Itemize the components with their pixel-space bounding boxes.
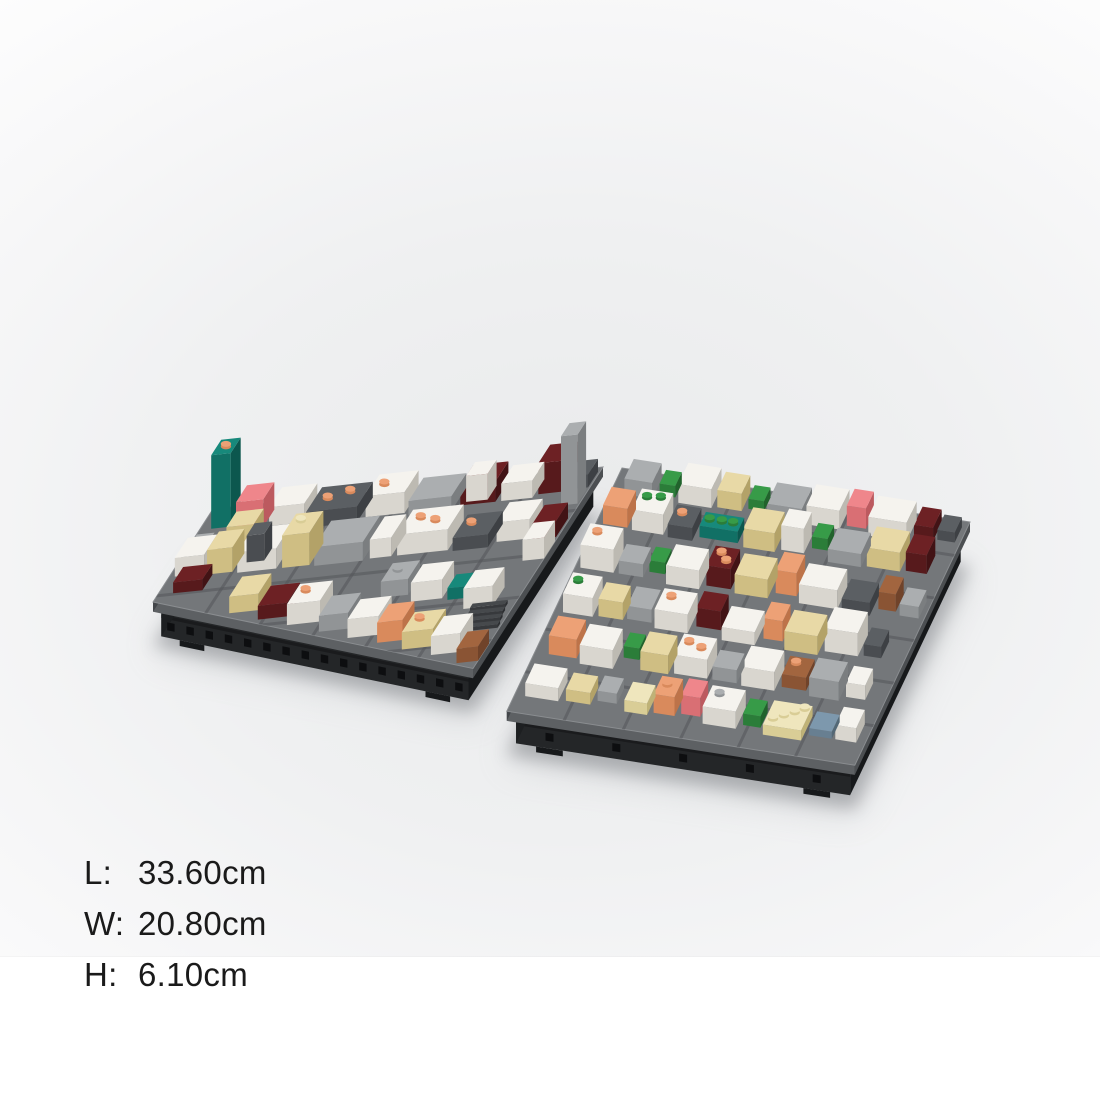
height-label: H: bbox=[84, 956, 138, 994]
width-label: W: bbox=[84, 905, 138, 943]
length-value: 33.60cm bbox=[138, 854, 267, 892]
length-label: L: bbox=[84, 854, 138, 892]
dimension-row-height: H: 6.10cm bbox=[84, 956, 267, 1007]
width-value: 20.80cm bbox=[138, 905, 267, 943]
dimension-row-width: W: 20.80cm bbox=[84, 905, 267, 956]
height-value: 6.10cm bbox=[138, 956, 248, 994]
product-image: L: 33.60cm W: 20.80cm H: 6.10cm bbox=[0, 0, 1100, 1100]
dimensions: L: 33.60cm W: 20.80cm H: 6.10cm bbox=[84, 854, 267, 1007]
dimension-row-length: L: 33.60cm bbox=[84, 854, 267, 905]
